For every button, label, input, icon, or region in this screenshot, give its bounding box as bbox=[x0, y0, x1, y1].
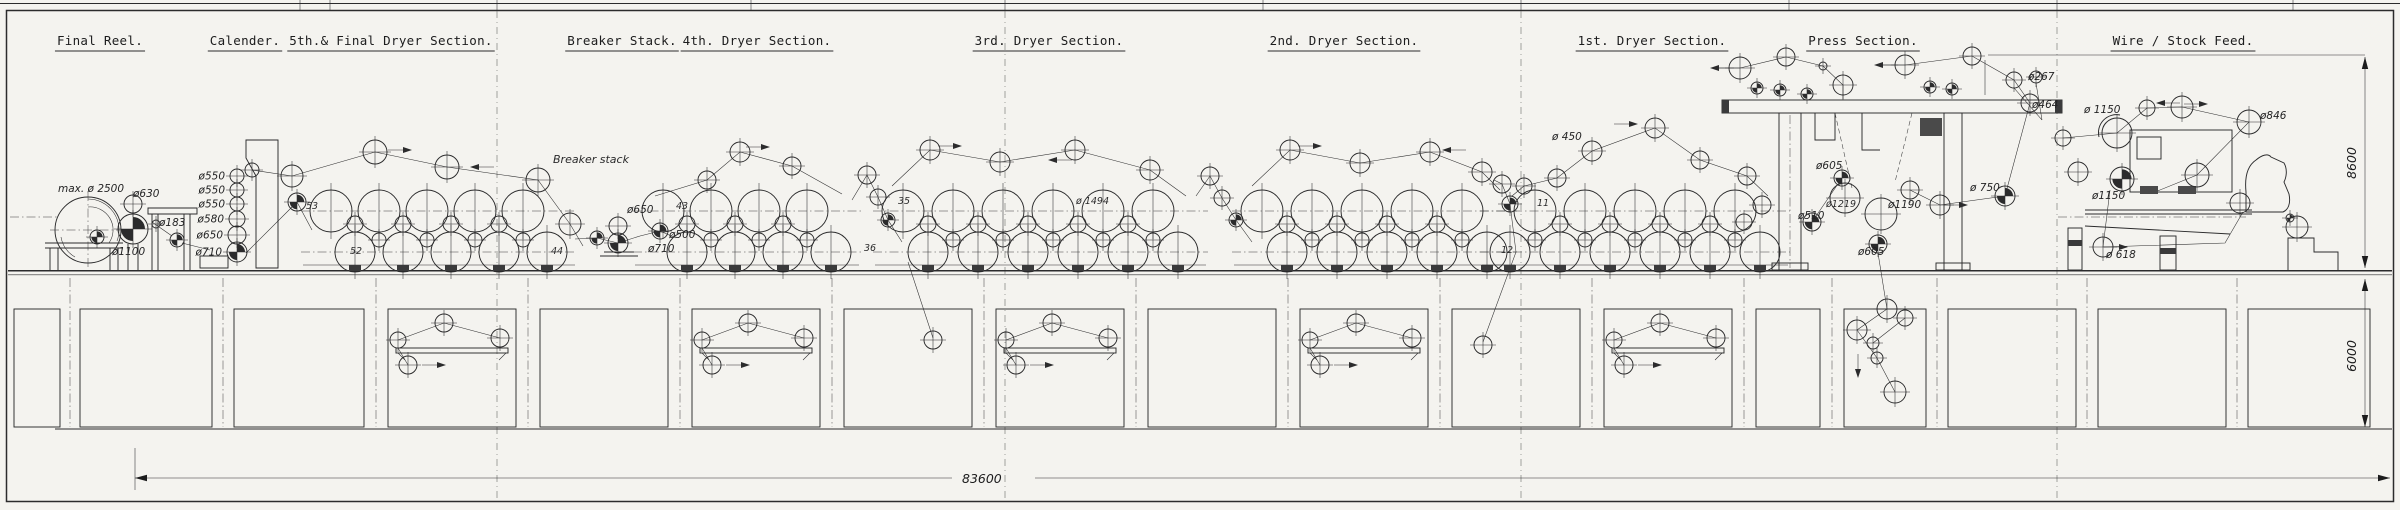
felt-run-line bbox=[852, 175, 902, 242]
cylinder-foot bbox=[445, 265, 457, 271]
drawing-frame bbox=[7, 11, 2394, 502]
roll-crosshair bbox=[1773, 44, 1799, 70]
bearing-symbol bbox=[1802, 89, 1812, 99]
section-label: Calender. bbox=[210, 33, 280, 48]
dim-arrow-right bbox=[2378, 475, 2390, 481]
roll-crosshair bbox=[916, 136, 944, 164]
roll-crosshair bbox=[2002, 68, 2026, 92]
wire-leg-band bbox=[2068, 240, 2082, 246]
roll-crosshair bbox=[1489, 171, 1515, 197]
section-label: Press Section. bbox=[1808, 33, 1918, 48]
dimensions: 83600 8600 6000 bbox=[135, 57, 2390, 490]
annotation-text: 36 bbox=[864, 243, 876, 254]
felt-runs bbox=[246, 56, 2249, 392]
cylinder-foot bbox=[349, 265, 361, 271]
bearing-symbol bbox=[290, 195, 304, 209]
cylinder-foot bbox=[777, 265, 789, 271]
roll-crosshair bbox=[1325, 212, 1349, 236]
felt-run-line bbox=[2063, 107, 2249, 192]
arrow-head bbox=[403, 147, 412, 153]
roll-crosshair bbox=[1375, 212, 1399, 236]
wire-leg bbox=[2068, 228, 2082, 270]
roll-crosshair bbox=[487, 325, 513, 351]
wire-leg-band-2 bbox=[2160, 248, 2176, 254]
roll-crosshair bbox=[1578, 137, 1606, 165]
arrow-head bbox=[1855, 369, 1861, 378]
annotation-text: ø605 bbox=[1857, 246, 1885, 258]
annotation-text: ø710 bbox=[647, 243, 675, 255]
roll-crosshair bbox=[1548, 212, 1572, 236]
roll-crosshair bbox=[2226, 189, 2254, 217]
annotation-text: ø846 bbox=[2259, 110, 2287, 122]
roll-crosshair bbox=[1016, 212, 1040, 236]
annotation-text: Breaker stack bbox=[553, 153, 630, 166]
felt-run-line bbox=[908, 262, 933, 338]
cylinder-foot bbox=[1431, 265, 1443, 271]
roll-crosshair bbox=[700, 229, 722, 251]
arrow-head bbox=[1048, 157, 1057, 163]
bearing-symbol bbox=[229, 244, 245, 260]
bearing-symbol bbox=[2287, 215, 2293, 221]
calender-roll-label: ø550 bbox=[198, 185, 226, 197]
roll-crosshair bbox=[920, 327, 946, 353]
roll-crosshair bbox=[464, 229, 486, 251]
machine-floor bbox=[8, 271, 2392, 275]
cylinder-foot bbox=[1122, 265, 1134, 271]
calender-stack: ø550ø550ø550ø580ø650ø710 bbox=[195, 165, 251, 266]
roll-crosshair bbox=[1003, 352, 1029, 378]
roll-crosshair bbox=[1066, 212, 1090, 236]
roll-crosshair bbox=[431, 151, 463, 183]
arrow-head bbox=[470, 164, 479, 170]
cylinder-foot bbox=[1331, 265, 1343, 271]
section-label: 4th. Dryer Section. bbox=[683, 33, 832, 48]
roll-crosshair bbox=[1524, 229, 1546, 251]
felt-run-line bbox=[1876, 56, 2030, 103]
fold-tick-marks bbox=[300, 0, 2293, 10]
cylinder-foot bbox=[825, 265, 837, 271]
roll-crosshair bbox=[555, 209, 585, 239]
arrow-head bbox=[741, 362, 750, 368]
calender-roll-label: ø710 bbox=[195, 247, 223, 259]
calender-roll-label: ø550 bbox=[198, 199, 226, 211]
overall-length-dim: 83600 bbox=[962, 471, 1002, 486]
pit-felt-line bbox=[702, 323, 804, 340]
bearing-symbol bbox=[91, 231, 102, 242]
roll-crosshair bbox=[1401, 229, 1423, 251]
cylinder-foot bbox=[1504, 265, 1516, 271]
roll-crosshair bbox=[1959, 43, 1985, 69]
pit-felt-line bbox=[1006, 323, 1108, 340]
annotation-text: max. ø 2500 bbox=[58, 183, 124, 195]
cylinder-foot bbox=[1281, 265, 1293, 271]
press-section bbox=[1722, 60, 2062, 270]
roll-crosshair bbox=[694, 167, 720, 193]
felt-beam bbox=[700, 348, 812, 353]
press-hatch-block bbox=[1920, 118, 1942, 136]
annotation-text: ø510 bbox=[1797, 210, 1825, 222]
roll-crosshair bbox=[966, 212, 990, 236]
calender-roll-label: ø580 bbox=[197, 214, 225, 226]
roll-crosshair bbox=[395, 352, 421, 378]
annotation-text: ø1219 bbox=[1825, 199, 1856, 210]
guide-rolls bbox=[86, 43, 2312, 407]
roll-crosshair bbox=[699, 352, 725, 378]
cylinder-foot bbox=[541, 265, 553, 271]
bearing-symbol bbox=[1947, 84, 1957, 94]
direction-arrows bbox=[388, 62, 2208, 378]
cylinder-foot bbox=[1072, 265, 1084, 271]
arrow-head bbox=[2199, 101, 2208, 107]
bearing-symbol bbox=[591, 232, 602, 243]
roll-crosshair bbox=[1042, 229, 1064, 251]
cylinder-foot bbox=[1381, 265, 1393, 271]
arrow-head bbox=[437, 362, 446, 368]
roll-crosshair bbox=[2051, 126, 2075, 150]
wire-frame bbox=[2130, 130, 2232, 192]
cylinder-foot bbox=[1754, 265, 1766, 271]
cylinder-foot bbox=[1554, 265, 1566, 271]
felt-beam bbox=[1004, 348, 1116, 353]
arrow-head bbox=[1874, 62, 1883, 68]
roll-crosshair bbox=[1544, 165, 1570, 191]
cylinder-foot bbox=[1654, 265, 1666, 271]
stock-pedestal bbox=[2288, 238, 2338, 270]
headbox bbox=[2246, 155, 2290, 212]
machine-height-dim: 8600 bbox=[2344, 147, 2359, 179]
basement-pits bbox=[14, 278, 2370, 427]
cylinder-foot bbox=[493, 265, 505, 271]
roll-crosshair bbox=[1647, 310, 1673, 336]
roll-crosshair bbox=[1703, 325, 1729, 351]
bearing-symbol bbox=[610, 235, 626, 251]
roll-crosshair bbox=[1136, 156, 1164, 184]
dryer-cylinders bbox=[301, 183, 1790, 279]
suction-box-2 bbox=[2178, 186, 2196, 194]
annotation-text: ø 750 bbox=[1969, 182, 2000, 194]
bearing-symbol bbox=[882, 214, 893, 225]
arrow-head bbox=[1045, 362, 1054, 368]
roll-crosshair bbox=[1276, 136, 1304, 164]
roll-crosshair bbox=[1351, 229, 1373, 251]
roll-crosshair bbox=[1687, 147, 1713, 173]
roll-crosshair bbox=[1307, 352, 1333, 378]
roll-crosshair bbox=[1116, 212, 1140, 236]
roll-crosshair bbox=[1611, 352, 1637, 378]
roll-crosshair bbox=[1399, 325, 1425, 351]
roll-crosshair bbox=[791, 325, 817, 351]
section-labels: Final Reel.Calender.5th.& Final Dryer Se… bbox=[55, 33, 2255, 51]
roll-crosshair bbox=[1880, 377, 1910, 407]
pit-felt-line bbox=[1310, 323, 1412, 340]
felt-beam bbox=[396, 348, 508, 353]
cylinder-foot bbox=[1172, 265, 1184, 271]
basement-pit bbox=[234, 309, 364, 427]
basement-pit bbox=[14, 309, 60, 427]
annotation-text: ø183 bbox=[158, 217, 185, 229]
roll-crosshair bbox=[1698, 212, 1722, 236]
roll-crosshair bbox=[1641, 114, 1669, 142]
roll-crosshair bbox=[1039, 310, 1065, 336]
forming-table bbox=[2085, 210, 2252, 234]
annotation-text: 52 bbox=[350, 246, 362, 257]
beam-end-block bbox=[1722, 100, 1729, 113]
cylinder-foot bbox=[1022, 265, 1034, 271]
wire-section bbox=[1988, 55, 2365, 270]
arrow-head bbox=[1313, 143, 1322, 149]
annotation-text: ø464 bbox=[2031, 99, 2058, 111]
roll-crosshair bbox=[1095, 325, 1121, 351]
annotation-text: 35 bbox=[898, 196, 910, 207]
roll-crosshair bbox=[487, 212, 511, 236]
section-label: 1st. Dryer Section. bbox=[1578, 33, 1727, 48]
felt-run-line bbox=[1494, 180, 1516, 252]
roll-crosshair bbox=[723, 212, 747, 236]
roll-crosshair bbox=[1648, 212, 1672, 236]
basement-pit bbox=[1844, 309, 1926, 427]
annotation-text: ø650 bbox=[626, 204, 654, 216]
roll-crosshair bbox=[942, 229, 964, 251]
annotation-text: ø630 bbox=[132, 188, 160, 200]
annotation-text: 53 bbox=[306, 201, 318, 212]
roll-crosshair bbox=[2167, 92, 2197, 122]
basement-pit bbox=[80, 309, 212, 427]
wire-frame-inner bbox=[2137, 137, 2161, 159]
pit-felt-line bbox=[1614, 323, 1716, 340]
roll-crosshair bbox=[1732, 210, 1756, 234]
roll-crosshair bbox=[779, 153, 805, 179]
bearing-symbol bbox=[1836, 172, 1849, 185]
roll-crosshair bbox=[1749, 192, 1775, 218]
arrow-head bbox=[2156, 100, 2165, 106]
press-pedestal-2 bbox=[1936, 263, 1970, 270]
roll-crosshair bbox=[2064, 158, 2092, 186]
roll-crosshair bbox=[368, 229, 390, 251]
section-label: 3rd. Dryer Section. bbox=[975, 33, 1124, 48]
felt-run-line bbox=[1512, 128, 1768, 196]
roll-crosshair bbox=[771, 212, 795, 236]
roll-crosshair bbox=[1142, 229, 1164, 251]
arrow-head bbox=[1710, 65, 1719, 71]
roll-crosshair bbox=[796, 229, 818, 251]
roll-crosshair bbox=[391, 212, 415, 236]
roll-crosshair bbox=[1451, 229, 1473, 251]
roll-crosshair bbox=[1724, 229, 1746, 251]
felt-run-line bbox=[1857, 253, 1895, 392]
annotation-text: ø 1494 bbox=[1075, 196, 1109, 207]
roll-crosshair bbox=[512, 229, 534, 251]
annotation-text: ø1190 bbox=[1887, 199, 1921, 211]
roll-crosshair bbox=[1425, 212, 1449, 236]
cylinder-foot bbox=[1481, 265, 1493, 271]
roll-crosshair bbox=[2135, 96, 2159, 120]
roll-crosshair bbox=[1734, 163, 1760, 189]
roll-crosshair bbox=[522, 164, 554, 196]
bearing-symbol bbox=[1925, 82, 1935, 92]
basement-pit bbox=[1452, 309, 1580, 427]
roll-crosshair bbox=[1574, 229, 1596, 251]
roll-crosshair bbox=[1867, 348, 1887, 368]
basement-pit bbox=[1148, 309, 1276, 427]
roll-crosshair bbox=[1301, 229, 1323, 251]
annotation-text: ø 618 bbox=[2105, 249, 2136, 261]
roll-crosshair bbox=[1470, 332, 1496, 358]
arrow-head bbox=[1653, 362, 1662, 368]
arrow-head bbox=[761, 144, 770, 150]
basement-pit bbox=[1756, 309, 1820, 427]
felt-run-line bbox=[1252, 150, 1500, 190]
section-label: 2nd. Dryer Section. bbox=[1270, 33, 1419, 48]
annotation-text: 43 bbox=[676, 201, 688, 212]
annotation-text: ø500 bbox=[668, 229, 696, 241]
basement-depth-dim: 6000 bbox=[2344, 340, 2359, 372]
roll-crosshair bbox=[416, 229, 438, 251]
roll-crosshair bbox=[277, 161, 307, 191]
paper-machine-drawing-sheet: ø550ø550ø550ø580ø650ø710 bbox=[0, 0, 2400, 510]
roll-crosshair bbox=[986, 148, 1014, 176]
annotation-text: ø605 bbox=[1815, 160, 1843, 172]
roll-crosshair bbox=[1092, 229, 1114, 251]
roll-crosshair bbox=[726, 138, 754, 166]
section-label: 5th.& Final Dryer Section. bbox=[289, 33, 492, 48]
roll-crosshair bbox=[241, 159, 263, 181]
section-label: Wire / Stock Feed. bbox=[2113, 33, 2254, 48]
roll-crosshair bbox=[1829, 71, 1857, 99]
roll-crosshair bbox=[735, 310, 761, 336]
roll-crosshair bbox=[343, 212, 367, 236]
cylinder-foot bbox=[397, 265, 409, 271]
cylinder-foot bbox=[1604, 265, 1616, 271]
arrow-head bbox=[1349, 362, 1358, 368]
felt-beam bbox=[1308, 348, 1420, 353]
roll-crosshair bbox=[1210, 186, 1234, 210]
roll-crosshair bbox=[431, 310, 457, 336]
press-column-2 bbox=[1944, 113, 1962, 270]
annotation-text: ø 450 bbox=[1551, 131, 1582, 143]
roll-crosshair bbox=[359, 136, 391, 168]
felt-run-line bbox=[1196, 176, 1252, 242]
arrow-head bbox=[1959, 202, 1968, 208]
arrow-head bbox=[1629, 121, 1638, 127]
bearing-symbol bbox=[1752, 83, 1762, 93]
bearing-symbol bbox=[1775, 85, 1785, 95]
bearing-symbol bbox=[171, 234, 182, 245]
roll-crosshair bbox=[1674, 229, 1696, 251]
roll-crosshair bbox=[1843, 316, 1871, 344]
annotation-text: ø1150 bbox=[2091, 190, 2125, 202]
roll-crosshair bbox=[1624, 229, 1646, 251]
roll-crosshair bbox=[992, 229, 1014, 251]
bearing-symbol bbox=[1230, 214, 1241, 225]
cylinder-foot bbox=[972, 265, 984, 271]
basement bbox=[14, 278, 2392, 429]
dim-arrow-left bbox=[135, 475, 147, 481]
annotation-text: 12 bbox=[1501, 245, 1513, 256]
roll-crosshair bbox=[866, 185, 890, 209]
felt-run-line bbox=[655, 152, 842, 196]
annotation-text: 11 bbox=[1537, 198, 1549, 209]
calender-roll-label: ø650 bbox=[196, 230, 224, 242]
roll-crosshair bbox=[1197, 163, 1223, 189]
section-label: Final Reel. bbox=[57, 33, 143, 48]
roll-crosshair bbox=[1343, 310, 1369, 336]
annotation-text: 44 bbox=[551, 246, 563, 257]
pit-felt-line bbox=[398, 323, 500, 340]
bearing-symbol bbox=[121, 217, 145, 241]
basement-pit bbox=[844, 309, 972, 427]
calender-frame bbox=[246, 140, 278, 268]
roll-crosshair bbox=[1275, 212, 1299, 236]
roll-crosshair bbox=[439, 212, 463, 236]
basement-pit bbox=[540, 309, 668, 427]
roll-crosshair bbox=[1826, 179, 1864, 217]
roll-crosshair bbox=[1512, 174, 1536, 198]
cylinder-foot bbox=[922, 265, 934, 271]
roll-crosshair bbox=[916, 212, 940, 236]
calender-roll-label: ø550 bbox=[198, 171, 226, 183]
annotation-text: ø 1150 bbox=[2083, 104, 2121, 116]
basement-pit bbox=[2098, 309, 2226, 427]
bearing-symbol bbox=[2112, 169, 2131, 188]
roll-crosshair bbox=[854, 162, 880, 188]
cylinder-foot bbox=[1704, 265, 1716, 271]
roll-crosshair bbox=[1346, 149, 1374, 177]
section-label: Breaker Stack. bbox=[567, 33, 677, 48]
arrow-head bbox=[953, 143, 962, 149]
roll-crosshair bbox=[1598, 212, 1622, 236]
roll-crosshair bbox=[748, 229, 770, 251]
suction-box bbox=[2140, 186, 2158, 194]
roll-crosshair bbox=[1863, 333, 1883, 353]
press-platform-beam bbox=[1722, 100, 2062, 113]
final-reel bbox=[10, 192, 138, 270]
drawing-canvas: ø550ø550ø550ø580ø650ø710 bbox=[0, 0, 2400, 510]
roll-crosshair bbox=[1416, 138, 1444, 166]
felt-beam bbox=[1612, 348, 1724, 353]
calender: ø550ø550ø550ø580ø650ø710 bbox=[148, 140, 278, 270]
annotation-text: ø1100 bbox=[111, 246, 145, 258]
felt-run-line bbox=[892, 150, 1186, 196]
cylinder-foot bbox=[681, 265, 693, 271]
cylinder-foot bbox=[729, 265, 741, 271]
press-hangers bbox=[1815, 113, 1880, 150]
bearing-symbol bbox=[654, 225, 667, 238]
annotation-text: ø267 bbox=[2027, 71, 2055, 83]
